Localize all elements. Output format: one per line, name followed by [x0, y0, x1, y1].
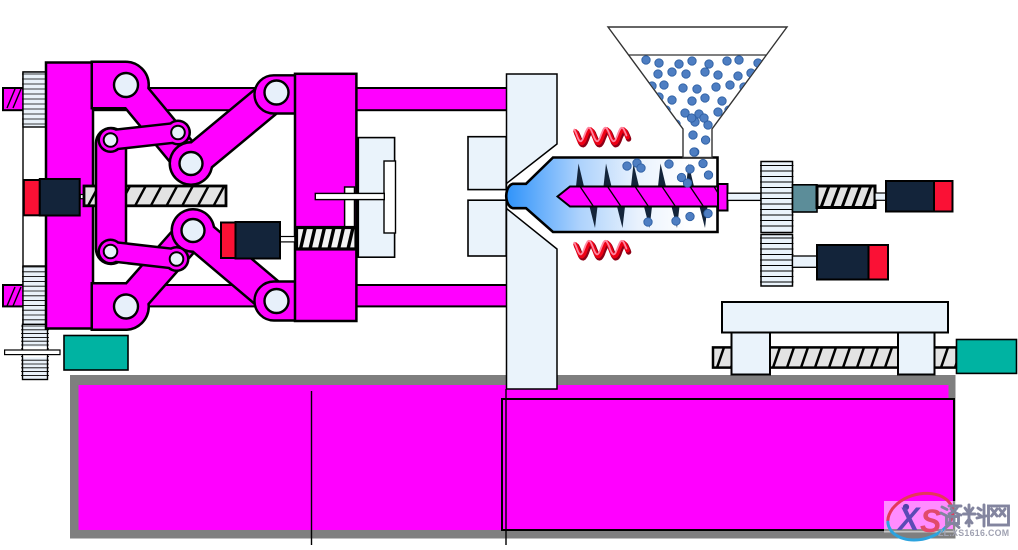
svg-text:ZL.XS1616.COM: ZL.XS1616.COM: [938, 528, 1009, 538]
svg-text:X: X: [896, 501, 921, 537]
